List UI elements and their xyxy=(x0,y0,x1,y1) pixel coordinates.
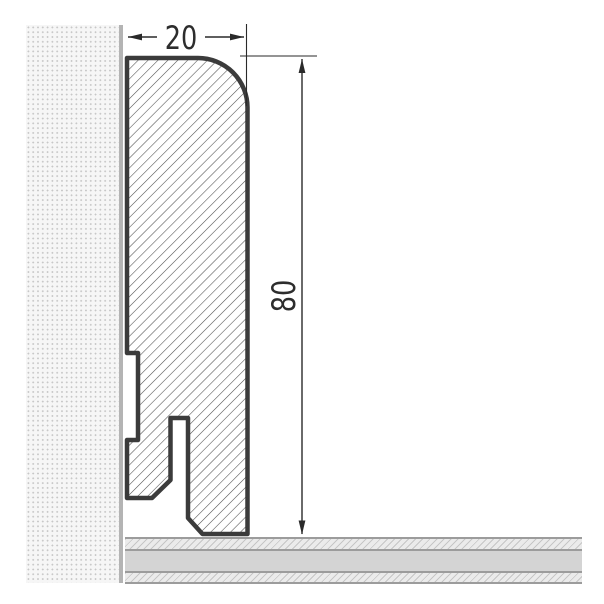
height-dimension-label: 80 xyxy=(267,272,301,320)
arrow-left-icon xyxy=(128,34,142,41)
arrow-right-icon xyxy=(230,34,244,41)
arrow-down-icon xyxy=(299,521,306,535)
skirting-profile xyxy=(127,58,248,534)
width-dimension-label: 20 xyxy=(157,21,205,55)
arrow-up-icon xyxy=(299,59,306,73)
technical-drawing-canvas: 20 80 xyxy=(0,0,604,604)
